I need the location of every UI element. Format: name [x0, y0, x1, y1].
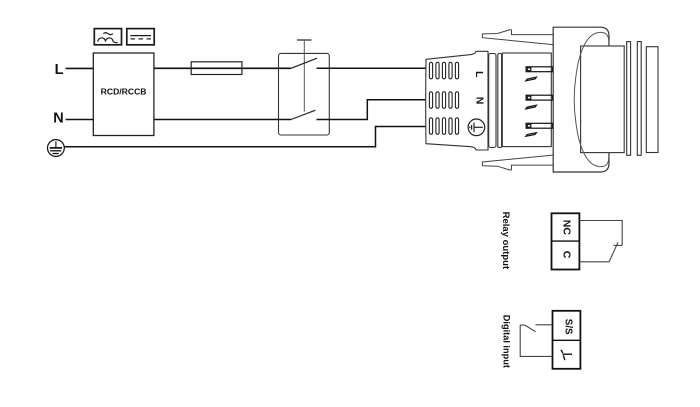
svg-text:L: L — [473, 71, 485, 78]
svg-text:S/S: S/S — [562, 319, 573, 335]
svg-text:L: L — [55, 62, 64, 78]
svg-text:NC: NC — [561, 220, 573, 236]
svg-text:N: N — [474, 97, 486, 105]
svg-text:C: C — [561, 251, 573, 259]
svg-text:RCD/RCCB: RCD/RCCB — [101, 86, 147, 96]
svg-text:Digital input: Digital input — [502, 315, 512, 368]
svg-text:N: N — [53, 110, 63, 126]
svg-text:Relay output: Relay output — [500, 212, 511, 270]
